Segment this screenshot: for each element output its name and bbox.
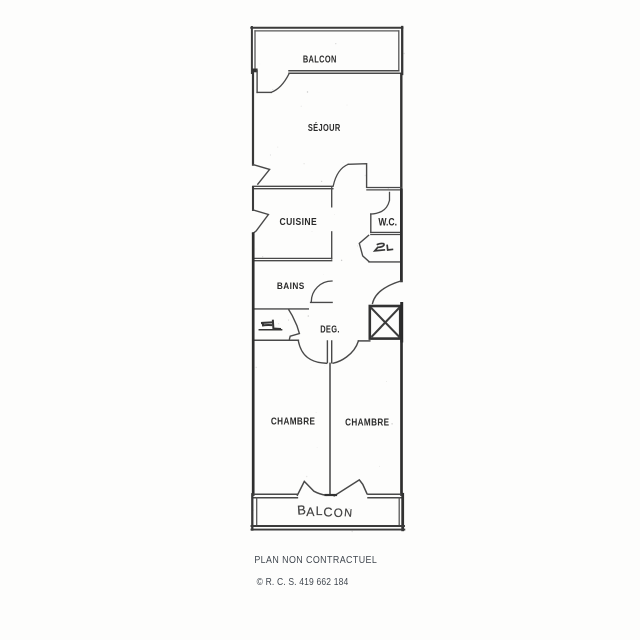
svg-text:A: A — [306, 505, 315, 519]
svg-text:O: O — [334, 507, 343, 520]
svg-text:SÉJOUR: SÉJOUR — [308, 122, 341, 133]
svg-text:DEG.: DEG. — [320, 323, 340, 334]
svg-text:W.C.: W.C. — [378, 216, 397, 228]
svg-text:B: B — [297, 502, 307, 518]
svg-text:N: N — [344, 507, 353, 520]
svg-text:L: L — [316, 504, 323, 518]
svg-text:CHAMBRE: CHAMBRE — [271, 416, 315, 427]
svg-text:CUISINE: CUISINE — [279, 215, 317, 227]
svg-text:© R. C. S. 419 662 184: © R. C. S. 419 662 184 — [257, 576, 349, 588]
svg-text:C: C — [323, 505, 332, 520]
svg-text:CHAMBRE: CHAMBRE — [345, 416, 389, 427]
svg-text:BAINS: BAINS — [277, 281, 305, 292]
svg-text:PLAN NON CONTRACTUEL: PLAN NON CONTRACTUEL — [254, 555, 377, 567]
svg-text:BALCON: BALCON — [303, 53, 337, 64]
